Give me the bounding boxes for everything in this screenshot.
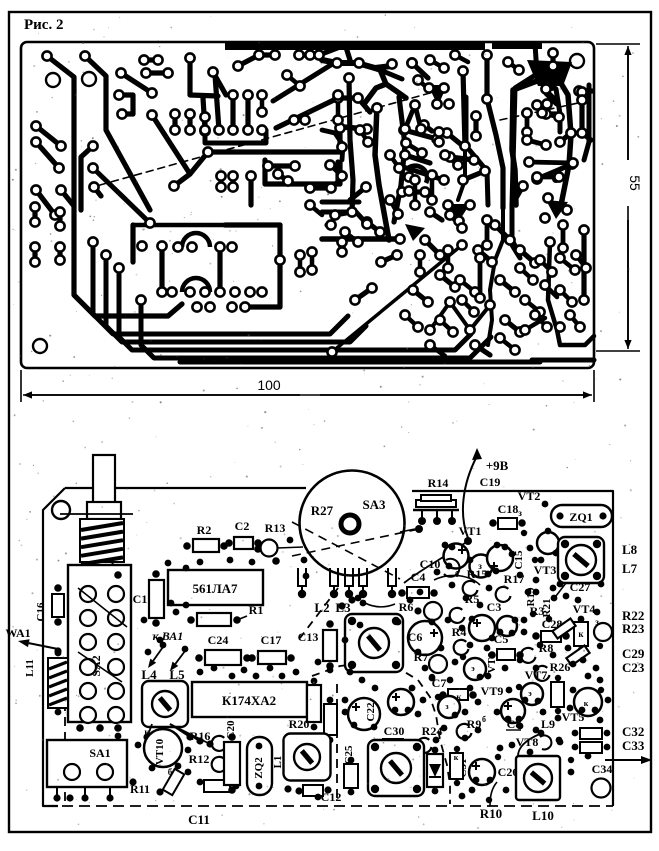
svg-text:к: к xyxy=(144,727,150,737)
svg-text:ZQ1: ZQ1 xyxy=(569,510,592,524)
svg-text:VT9: VT9 xyxy=(481,684,504,698)
svg-text:L9: L9 xyxy=(541,717,555,731)
svg-text:R15: R15 xyxy=(467,567,488,581)
svg-text:э: э xyxy=(471,664,475,673)
svg-text:R12: R12 xyxy=(189,752,210,766)
svg-text:к: к xyxy=(456,692,462,702)
svg-text:VT4: VT4 xyxy=(573,602,596,616)
svg-text:R3: R3 xyxy=(530,604,545,618)
svg-text:R16: R16 xyxy=(190,729,211,743)
svg-text:R7: R7 xyxy=(414,650,429,664)
svg-text:з: з xyxy=(518,508,522,518)
svg-text:R14: R14 xyxy=(428,476,449,490)
svg-text:R13: R13 xyxy=(265,521,286,535)
svg-text:L2: L2 xyxy=(314,600,329,615)
svg-text:C29: C29 xyxy=(622,646,645,661)
svg-text:э: э xyxy=(528,689,532,698)
svg-text:к: к xyxy=(454,753,459,762)
svg-text:C6: C6 xyxy=(408,630,423,644)
svg-text:VT5: VT5 xyxy=(562,710,585,724)
svg-text:C33: C33 xyxy=(622,738,645,753)
svg-text:C19: C19 xyxy=(480,475,501,489)
svg-text:C4: C4 xyxy=(411,570,426,584)
svg-text:C30: C30 xyxy=(384,724,405,738)
svg-text:VT2: VT2 xyxy=(518,489,541,503)
svg-text:L4: L4 xyxy=(141,667,157,682)
svg-text:VT10: VT10 xyxy=(154,738,166,765)
svg-text:з: з xyxy=(595,617,599,627)
svg-text:L10: L10 xyxy=(532,808,554,823)
svg-text:561ЛА7: 561ЛА7 xyxy=(192,581,238,596)
svg-text:к: к xyxy=(578,629,584,639)
svg-text:VT3: VT3 xyxy=(534,563,557,577)
svg-text:R2: R2 xyxy=(197,523,212,537)
svg-text:WA1: WA1 xyxy=(5,626,30,640)
svg-text:R23: R23 xyxy=(622,621,645,636)
svg-text:б: б xyxy=(482,715,486,724)
svg-text:C3: C3 xyxy=(487,600,502,614)
svg-text:C16: C16 xyxy=(35,602,47,621)
svg-text:C32: C32 xyxy=(622,724,644,739)
svg-text:SA3: SA3 xyxy=(362,497,386,512)
svg-text:C22: C22 xyxy=(365,702,377,721)
svg-text:L11: L11 xyxy=(24,659,36,677)
svg-text:SA1: SA1 xyxy=(89,746,110,760)
svg-text:C24: C24 xyxy=(208,633,229,647)
svg-text:C13: C13 xyxy=(298,630,319,644)
svg-text:L5: L5 xyxy=(169,667,185,682)
svg-text:ZQ2: ZQ2 xyxy=(253,757,265,779)
svg-text:к: к xyxy=(584,699,589,708)
svg-text:C11: C11 xyxy=(188,812,210,827)
svg-text:+9B: +9B xyxy=(486,458,509,473)
svg-text:100: 100 xyxy=(257,377,281,393)
svg-text:R27: R27 xyxy=(311,503,334,518)
svg-text:R1: R1 xyxy=(249,603,264,617)
svg-text:C23: C23 xyxy=(622,660,645,675)
svg-text:Рис. 2: Рис. 2 xyxy=(24,17,63,33)
svg-text:R24: R24 xyxy=(422,724,443,738)
svg-text:VT1: VT1 xyxy=(459,524,482,538)
svg-text:C1: C1 xyxy=(133,592,148,606)
svg-text:C2: C2 xyxy=(235,519,250,533)
svg-text:55: 55 xyxy=(627,175,643,191)
svg-text:C18: C18 xyxy=(498,502,519,516)
svg-text:C17: C17 xyxy=(261,633,282,647)
svg-text:L1: L1 xyxy=(272,756,284,769)
svg-text:C12: C12 xyxy=(321,790,342,804)
svg-text:VT6: VT6 xyxy=(486,652,498,673)
svg-text:R26: R26 xyxy=(550,660,571,674)
svg-text:C27: C27 xyxy=(570,580,591,594)
svg-text:L7: L7 xyxy=(622,561,638,576)
svg-text:R10: R10 xyxy=(480,806,502,821)
svg-text:C34: C34 xyxy=(592,762,613,776)
svg-text:К174ХА2: К174ХА2 xyxy=(222,693,276,708)
